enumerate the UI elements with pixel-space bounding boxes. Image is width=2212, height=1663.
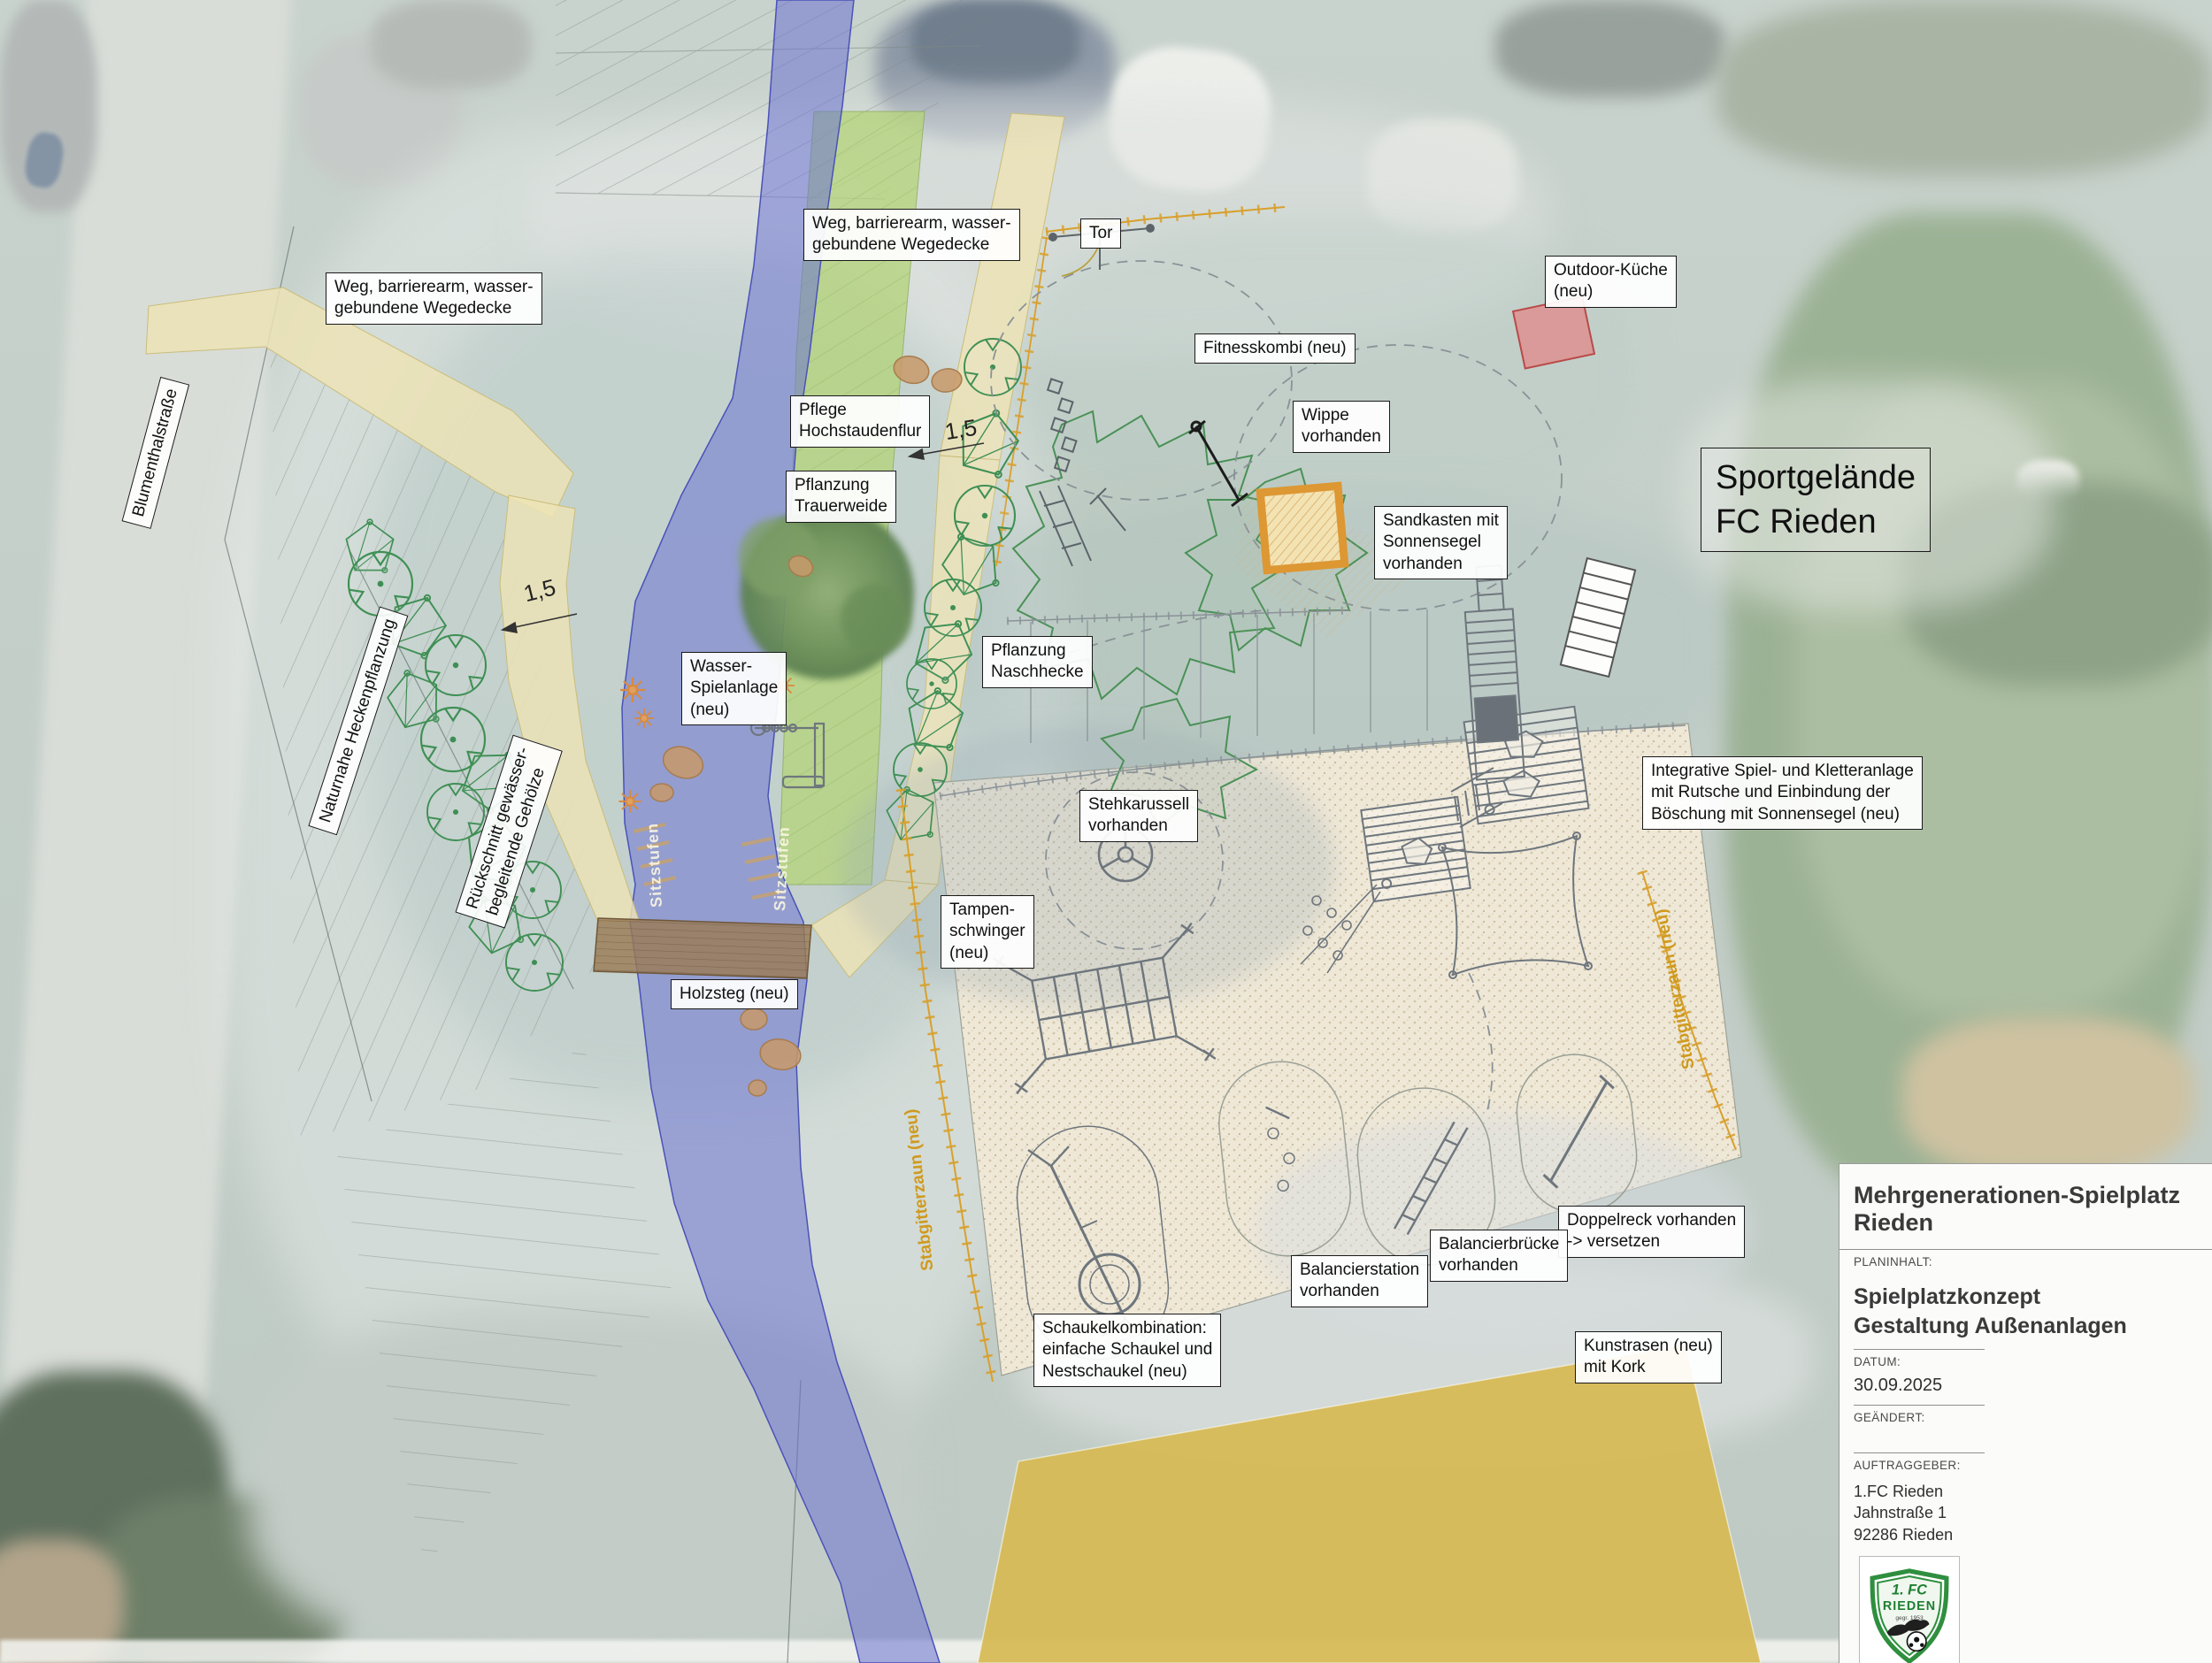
label-weeping-willow: Pflanzung Trauerweide xyxy=(786,471,896,523)
planinhalt-label: PLANINHALT: xyxy=(1854,1255,2198,1268)
label-path-barrier-free-north: Weg, barrierearm, wasser- gebundene Wege… xyxy=(803,209,1020,261)
label-water-play: Wasser- Spielanlage (neu) xyxy=(681,652,787,725)
stairs-symbol xyxy=(1561,558,1635,677)
client-city: 92286 Rieden xyxy=(1854,1524,2198,1545)
label-path-barrier-free-west: Weg, barrierearm, wasser- gebundene Wege… xyxy=(326,272,542,325)
date-label: DATUM: xyxy=(1854,1355,2198,1368)
wooden-bridge xyxy=(594,918,811,978)
client-name: 1.FC Rieden xyxy=(1854,1481,2198,1502)
label-gate: Tor xyxy=(1080,218,1121,249)
title-block: Mehrgenerationen-Spielplatz Rieden PLANI… xyxy=(1839,1163,2212,1663)
artificial-turf-field xyxy=(978,1345,1761,1663)
client-street: Jahnstraße 1 xyxy=(1854,1502,2198,1523)
label-outdoor-kitchen: Outdoor-Küche (neu) xyxy=(1545,256,1677,308)
label-balance-station: Balancierstation vorhanden xyxy=(1291,1255,1428,1307)
project-title: Mehrgenerationen-Spielplatz Rieden xyxy=(1839,1164,2212,1250)
label-fitness-combo: Fitnesskombi (neu) xyxy=(1194,333,1356,364)
label-rope-swing: Tampen- schwinger (neu) xyxy=(941,895,1034,969)
label-tall-herb-meadow: Pflege Hochstaudenflur xyxy=(790,395,930,448)
plan-content-line2: Gestaltung Außenanlagen xyxy=(1854,1312,2198,1341)
plan-content-line1: Spielplatzkonzept xyxy=(1854,1283,2198,1312)
label-carousel: Stehkarussell vorhanden xyxy=(1079,790,1198,842)
changed-label: GEÄNDERT: xyxy=(1854,1411,2198,1424)
label-seating-steps-west: Sitzstufen xyxy=(642,822,667,908)
logo-text-top: 1. FC xyxy=(1892,1583,1927,1598)
club-logo: 1. FC RIEDEN gegr. 1953 xyxy=(1859,1556,1960,1663)
label-snack-hedge: Pflanzung Naschhecke xyxy=(982,636,1093,688)
label-artificial-turf: Kunstrasen (neu) mit Kork xyxy=(1575,1331,1722,1383)
label-balance-bridge: Balancierbrücke vorhanden xyxy=(1430,1230,1568,1282)
client-label: AUFTRAGGEBER: xyxy=(1854,1459,2198,1472)
label-seesaw: Wippe vorhanden xyxy=(1293,401,1390,453)
logo-text-name: RIEDEN xyxy=(1883,1599,1936,1613)
label-integrative-climbing: Integrative Spiel- und Kletteranlage mit… xyxy=(1642,756,1923,830)
label-wooden-bridge: Holzsteg (neu) xyxy=(671,979,798,1009)
label-double-bar: Doppelreck vorhanden -> versetzen xyxy=(1558,1206,1745,1258)
dimension-path-width-north: 1,5 xyxy=(943,413,979,448)
label-swing-combination: Schaukelkombination: einfache Schaukel u… xyxy=(1033,1314,1221,1387)
label-sports-ground: Sportgelände FC Rieden xyxy=(1701,448,1931,552)
site-plan-page: Weg, barrierearm, wasser- gebundene Wege… xyxy=(0,0,2212,1663)
date-value: 30.09.2025 xyxy=(1854,1376,2198,1396)
label-sandbox: Sandkasten mit Sonnensegel vorhanden xyxy=(1374,506,1508,579)
